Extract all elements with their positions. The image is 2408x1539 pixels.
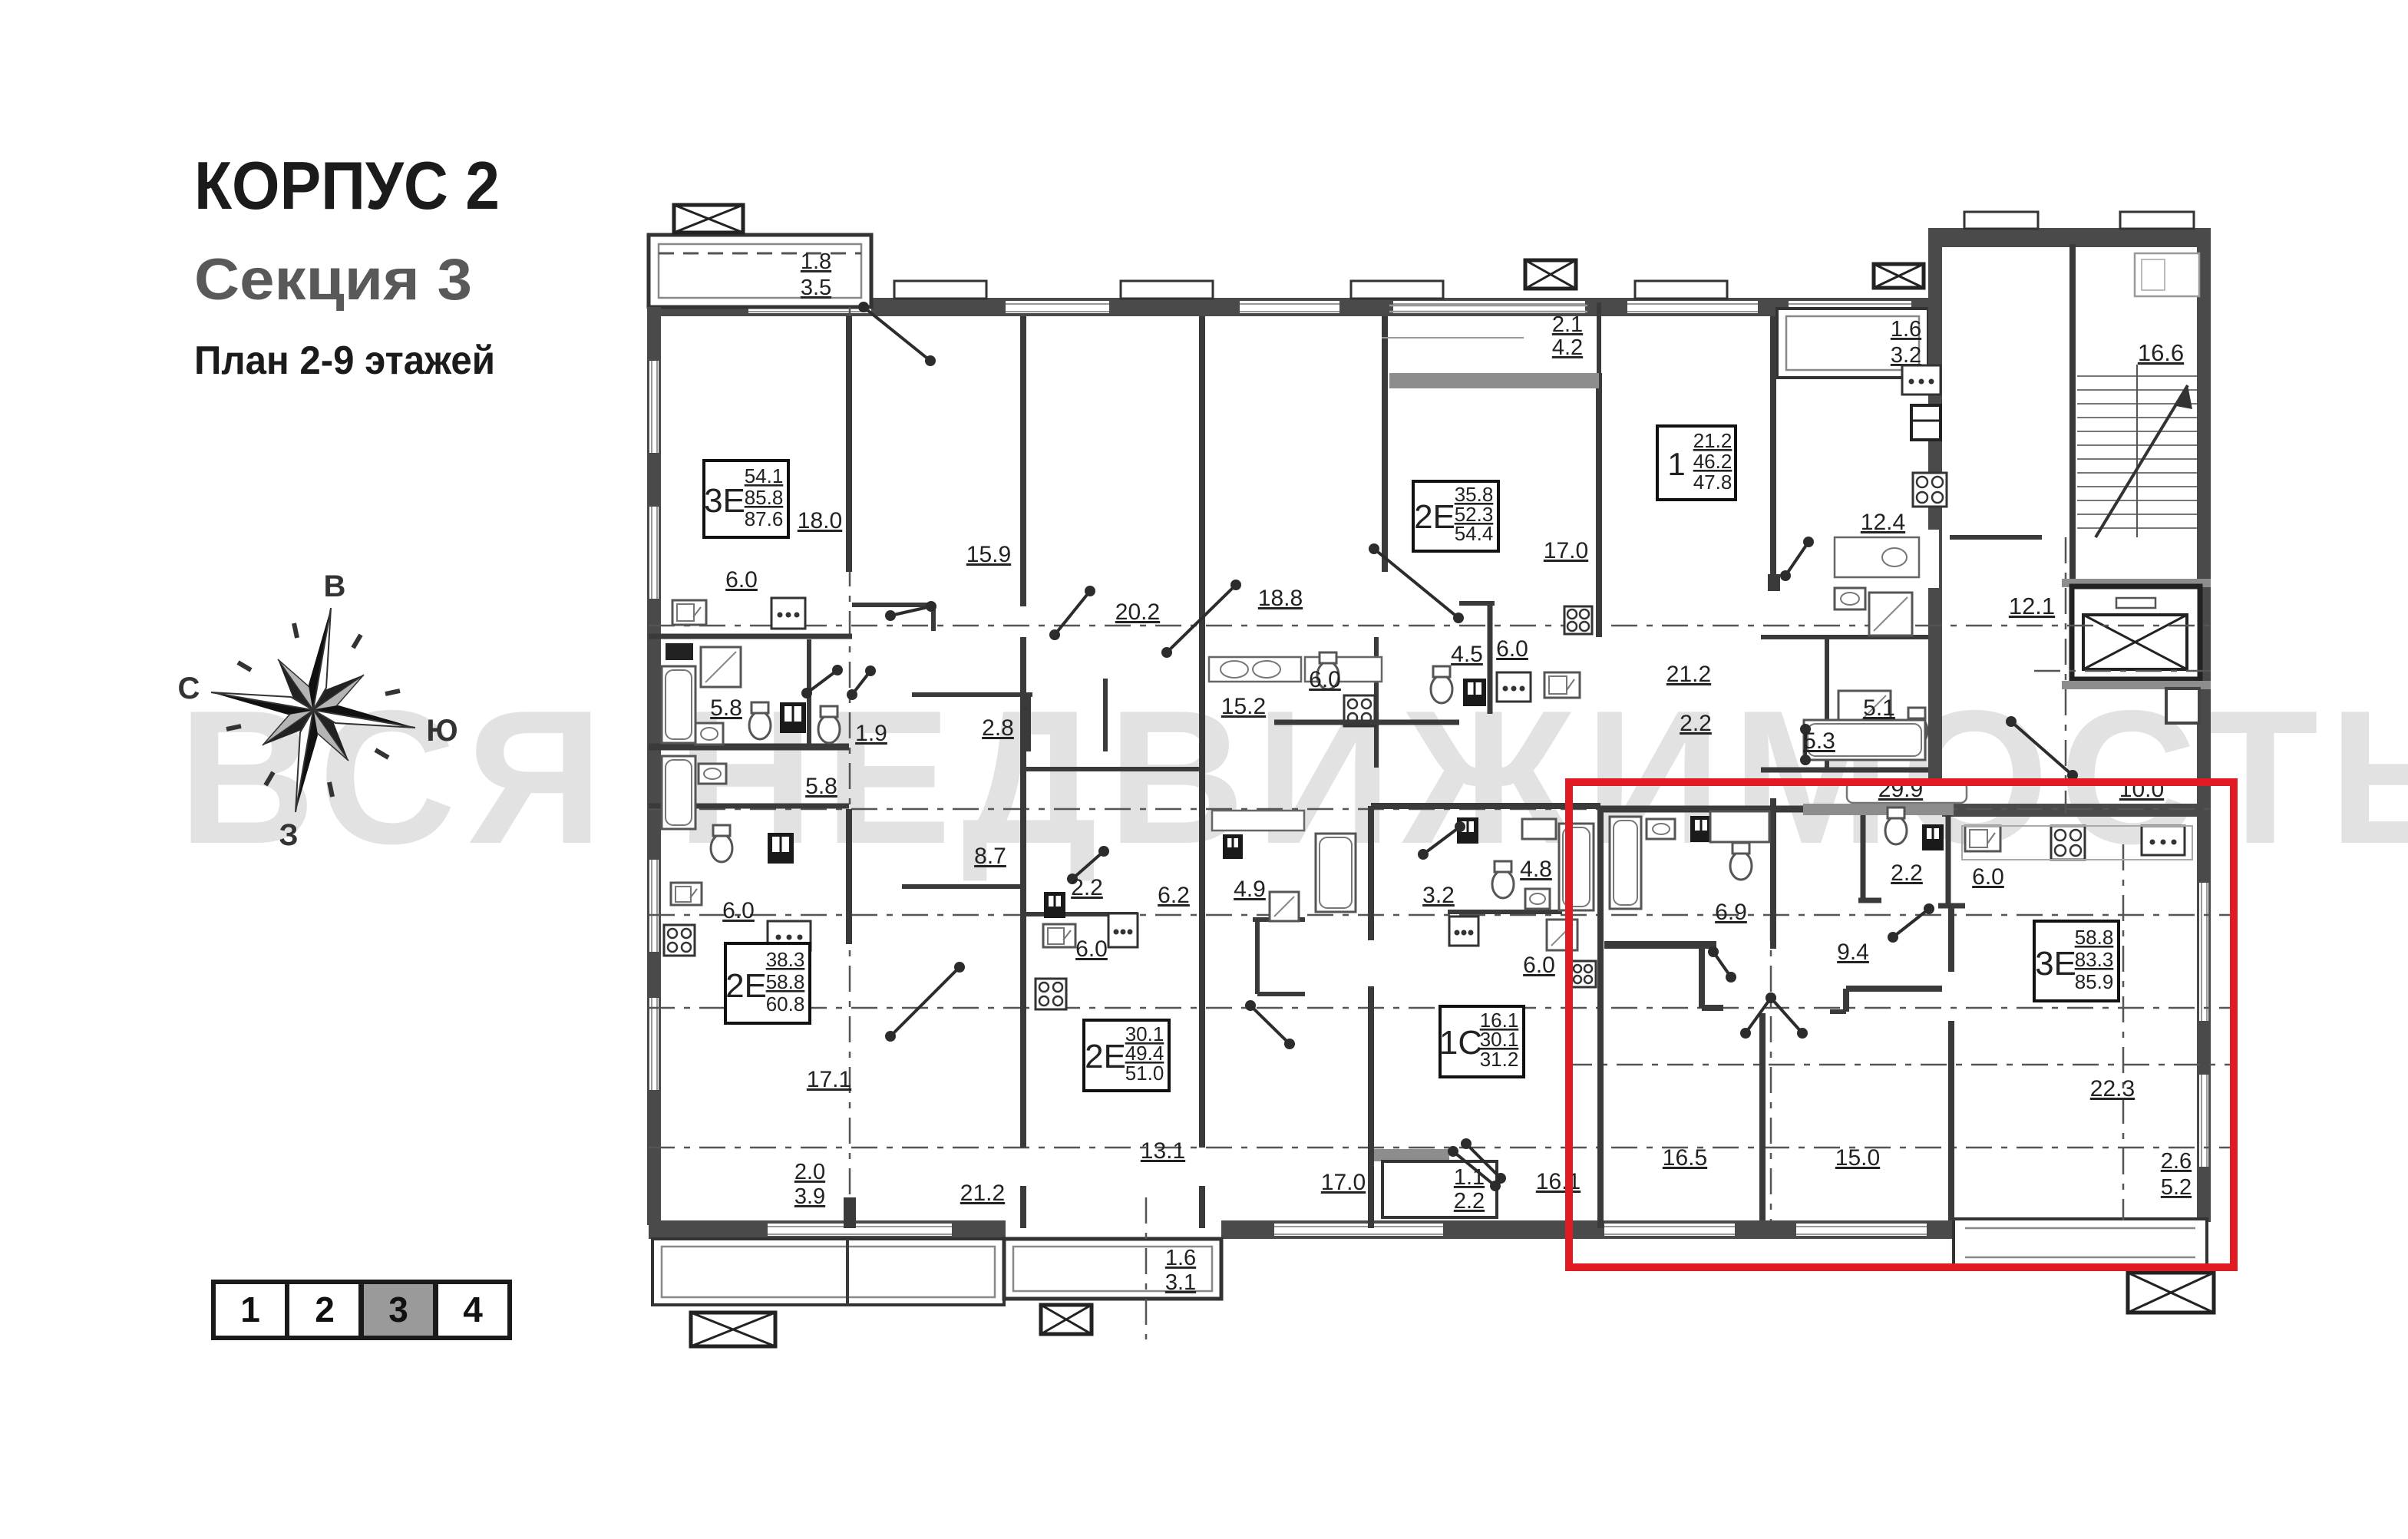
svg-text:54.1: 54.1 — [745, 464, 784, 487]
svg-text:2Е: 2Е — [725, 967, 767, 1005]
svg-text:12.4: 12.4 — [1861, 510, 1905, 535]
svg-text:15.0: 15.0 — [1835, 1145, 1880, 1171]
svg-text:1С: 1С — [1439, 1024, 1482, 1062]
svg-text:21.2: 21.2 — [1666, 662, 1711, 687]
svg-text:31.2: 31.2 — [1480, 1048, 1519, 1071]
svg-text:3.1: 3.1 — [1165, 1270, 1196, 1295]
svg-text:38.3: 38.3 — [766, 948, 805, 971]
svg-text:58.8: 58.8 — [2075, 926, 2114, 949]
svg-text:План 2-9 этажей: План 2-9 этажей — [194, 339, 495, 383]
svg-text:2.2: 2.2 — [1071, 875, 1103, 900]
svg-text:6.0: 6.0 — [1496, 636, 1528, 662]
svg-text:58.8: 58.8 — [766, 970, 805, 993]
svg-text:6.9: 6.9 — [1715, 900, 1747, 925]
svg-text:18.8: 18.8 — [1258, 586, 1303, 611]
svg-text:3.2: 3.2 — [1891, 343, 1921, 368]
svg-text:17.0: 17.0 — [1544, 538, 1588, 563]
svg-text:4: 4 — [463, 1290, 483, 1329]
svg-text:4.5: 4.5 — [1451, 642, 1483, 667]
svg-text:85.8: 85.8 — [745, 486, 784, 509]
svg-text:16.6: 16.6 — [2138, 339, 2184, 366]
svg-text:60.8: 60.8 — [766, 992, 805, 1016]
svg-text:1.1: 1.1 — [1454, 1165, 1485, 1190]
svg-text:2.8: 2.8 — [982, 715, 1014, 741]
svg-text:3.5: 3.5 — [801, 276, 831, 300]
svg-text:16.5: 16.5 — [1663, 1145, 1707, 1171]
svg-text:1.8: 1.8 — [801, 249, 831, 274]
svg-text:85.9: 85.9 — [2075, 970, 2114, 993]
svg-text:54.4: 54.4 — [1455, 522, 1494, 545]
svg-text:6.0: 6.0 — [1523, 953, 1555, 978]
svg-text:6.0: 6.0 — [725, 567, 758, 593]
svg-text:2Е: 2Е — [1085, 1038, 1126, 1075]
svg-text:З: З — [279, 818, 298, 852]
svg-text:6.0: 6.0 — [1075, 936, 1108, 962]
svg-text:5.8: 5.8 — [805, 774, 837, 799]
svg-text:1: 1 — [1667, 446, 1685, 482]
svg-text:3Е: 3Е — [704, 482, 745, 520]
svg-text:КОРПУС 2: КОРПУС 2 — [194, 147, 500, 223]
svg-text:С: С — [178, 672, 200, 705]
svg-text:87.6: 87.6 — [745, 507, 784, 530]
svg-text:4.9: 4.9 — [1234, 877, 1266, 902]
svg-text:47.8: 47.8 — [1693, 471, 1733, 494]
svg-text:9.4: 9.4 — [1837, 940, 1869, 965]
svg-text:21.2: 21.2 — [960, 1181, 1005, 1206]
svg-text:22.3: 22.3 — [2090, 1076, 2135, 1101]
svg-text:2.2: 2.2 — [1891, 860, 1923, 886]
svg-text:51.0: 51.0 — [1125, 1062, 1164, 1085]
svg-text:13.1: 13.1 — [1141, 1138, 1185, 1164]
svg-text:1.6: 1.6 — [1891, 317, 1921, 342]
svg-text:2.0: 2.0 — [794, 1160, 825, 1184]
svg-text:2Е: 2Е — [1414, 498, 1455, 536]
svg-text:5.3: 5.3 — [1803, 728, 1835, 754]
svg-text:3.9: 3.9 — [794, 1184, 825, 1209]
svg-text:5.8: 5.8 — [710, 695, 742, 721]
svg-text:Секция 3: Секция 3 — [194, 247, 472, 312]
svg-text:3Е: 3Е — [2035, 945, 2076, 983]
svg-text:2.2: 2.2 — [1454, 1189, 1485, 1214]
svg-text:21.2: 21.2 — [1693, 429, 1733, 452]
svg-text:6.0: 6.0 — [1309, 667, 1341, 692]
svg-text:4.2: 4.2 — [1552, 335, 1583, 360]
svg-text:8.7: 8.7 — [974, 844, 1006, 869]
svg-text:18.0: 18.0 — [798, 508, 842, 533]
svg-text:15.2: 15.2 — [1221, 694, 1266, 719]
svg-text:Ю: Ю — [426, 714, 457, 748]
svg-text:4.8: 4.8 — [1520, 857, 1552, 882]
svg-text:1.9: 1.9 — [855, 721, 887, 746]
svg-text:1.6: 1.6 — [1165, 1246, 1196, 1270]
svg-text:12.1: 12.1 — [2009, 593, 2055, 619]
svg-text:6.0: 6.0 — [722, 898, 755, 923]
svg-text:83.3: 83.3 — [2075, 948, 2114, 971]
svg-text:2.6: 2.6 — [2161, 1149, 2192, 1174]
svg-text:2: 2 — [315, 1290, 335, 1329]
svg-text:2.1: 2.1 — [1552, 312, 1583, 337]
svg-text:6.0: 6.0 — [1972, 864, 2004, 890]
svg-text:6.2: 6.2 — [1158, 883, 1190, 908]
svg-text:17.0: 17.0 — [1321, 1170, 1366, 1195]
svg-text:1: 1 — [240, 1290, 260, 1329]
svg-text:В: В — [324, 570, 346, 603]
svg-text:2.2: 2.2 — [1680, 711, 1712, 736]
svg-text:17.1: 17.1 — [807, 1067, 851, 1092]
svg-text:16.1: 16.1 — [1536, 1169, 1581, 1194]
svg-text:3.2: 3.2 — [1422, 883, 1455, 908]
svg-text:15.9: 15.9 — [966, 542, 1011, 567]
svg-text:5.2: 5.2 — [2161, 1175, 2192, 1200]
svg-text:5.1: 5.1 — [1863, 695, 1895, 721]
svg-text:3: 3 — [388, 1290, 408, 1329]
svg-text:46.2: 46.2 — [1693, 450, 1733, 473]
svg-text:20.2: 20.2 — [1115, 599, 1160, 625]
